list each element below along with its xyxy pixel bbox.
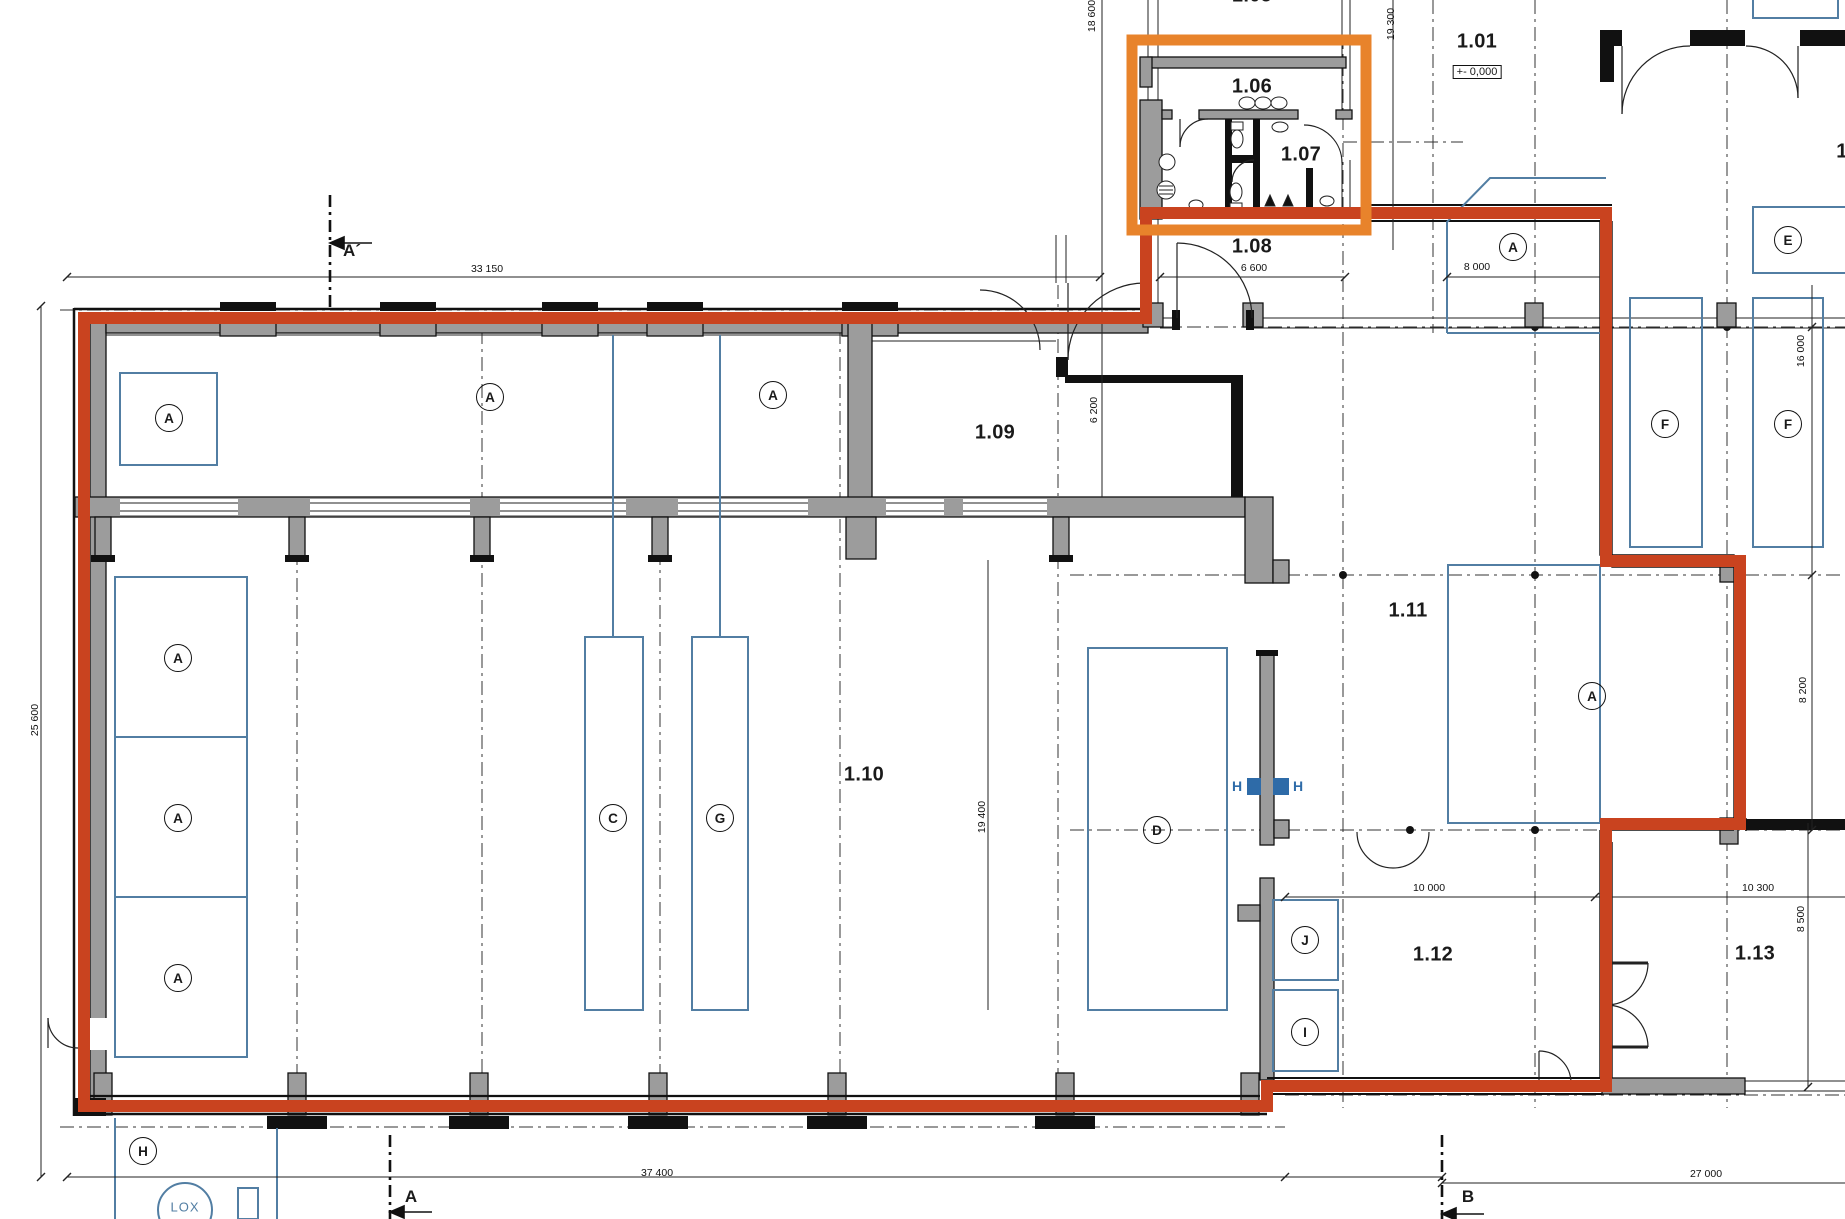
level-marker-value: +- 0,000 xyxy=(1453,65,1502,79)
dim-33150: 33 150 xyxy=(471,263,503,275)
dim-19400: 19 400 xyxy=(976,801,988,833)
zone-circle-c: C xyxy=(599,804,627,832)
floor-plan-canvas: 1.05 1.06 1.07 1.08 1.01 1.09 1.10 1.11 … xyxy=(0,0,1845,1219)
section-marker-a-prime: A´ xyxy=(343,241,361,261)
dim-8200: 8 200 xyxy=(1797,677,1809,703)
fire-zone-highlight-path xyxy=(84,213,1740,1106)
floor-plan-geometry xyxy=(0,0,1845,1219)
room-label-partial-right: 1 xyxy=(1836,141,1845,164)
hydrant-label-left: H xyxy=(1232,778,1242,794)
room-label-1.08: 1.08 xyxy=(1232,236,1272,259)
room-label-1.05: 1.05 xyxy=(1232,0,1272,8)
zone-circle-j: J xyxy=(1291,926,1319,954)
room-label-1.11: 1.11 xyxy=(1388,600,1427,623)
black-walls xyxy=(74,30,1845,1129)
zone-circle-a-topband-1: A xyxy=(476,383,504,411)
grid-axes xyxy=(60,0,1845,1127)
dim-18600: 18 600 xyxy=(1086,0,1098,32)
room-label-1.12: 1.12 xyxy=(1413,944,1453,967)
zone-circle-a-topright: A xyxy=(1499,233,1527,261)
window-lines xyxy=(106,0,1845,1091)
zone-circle-a-topband-2: A xyxy=(759,381,787,409)
zone-outlines xyxy=(115,0,1845,1219)
zone-circle-f-2: F xyxy=(1774,410,1802,438)
zone-circle-a-topband-box: A xyxy=(155,404,183,432)
zone-circle-h: H xyxy=(129,1137,157,1165)
dim-6600: 6 600 xyxy=(1241,262,1267,274)
section-cut-lines xyxy=(330,195,1442,1219)
dim-6200: 6 200 xyxy=(1088,397,1100,423)
zone-circle-i: I xyxy=(1291,1018,1319,1046)
dim-8500: 8 500 xyxy=(1795,906,1807,932)
zone-circle-d: D xyxy=(1143,816,1171,844)
dim-10000: 10 000 xyxy=(1413,882,1445,894)
lox-label: LOX xyxy=(170,1200,199,1215)
dim-27000: 27 000 xyxy=(1690,1168,1722,1180)
room-label-1.09: 1.09 xyxy=(975,422,1015,445)
zone-circle-e: E xyxy=(1774,226,1802,254)
zone-circle-a-right: A xyxy=(1578,682,1606,710)
dim-8000: 8 000 xyxy=(1464,261,1490,273)
section-marker-a: A xyxy=(405,1187,417,1207)
room-label-1.07: 1.07 xyxy=(1281,144,1321,167)
room-label-1.10: 1.10 xyxy=(844,764,884,787)
zone-circle-f-1: F xyxy=(1651,410,1679,438)
wall-outlines xyxy=(74,205,1746,1116)
dim-37400: 37 400 xyxy=(641,1167,673,1179)
dim-16000: 16 000 xyxy=(1795,335,1807,367)
zone-circle-a-left-2: A xyxy=(164,804,192,832)
zone-circle-a-left-3: A xyxy=(164,964,192,992)
room-label-1.01: 1.01 xyxy=(1457,31,1497,54)
section-marker-b: B xyxy=(1462,1187,1474,1207)
zone-circle-a-left-1: A xyxy=(164,644,192,672)
room-label-1.06: 1.06 xyxy=(1232,76,1272,99)
dim-25600: 25 600 xyxy=(29,704,41,736)
level-marker: +- 0,000 xyxy=(1453,62,1502,80)
zone-circle-g: G xyxy=(706,804,734,832)
room-label-1.13: 1.13 xyxy=(1735,943,1775,966)
dim-19300: 19 300 xyxy=(1385,8,1397,40)
dim-10300: 10 300 xyxy=(1742,882,1774,894)
hydrant-label-right: H xyxy=(1293,778,1303,794)
